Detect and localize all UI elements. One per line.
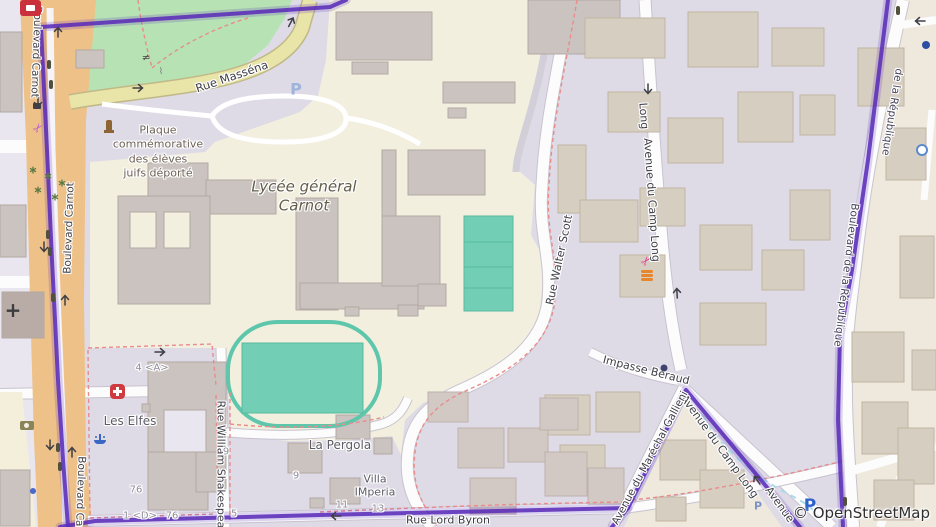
place-label-la-pergola: La Pergola	[309, 439, 371, 453]
house-number: 13	[372, 503, 385, 515]
tree-icon: ∗	[28, 164, 37, 177]
house-number: 9	[223, 446, 229, 458]
traffic-signal-icon	[47, 60, 51, 69]
node-dot	[922, 41, 930, 49]
tree-icon: ∗	[57, 177, 66, 190]
house-number: 1 <D>	[123, 510, 157, 522]
clinic-icon	[110, 384, 125, 399]
traffic-signal-icon	[51, 293, 55, 302]
parking-icon: P	[290, 80, 302, 99]
street-label-rue-william-shakespeare: Rue William Shakespeare	[214, 401, 227, 527]
attribution[interactable]: © OpenStreetMap	[793, 504, 930, 522]
memorial-label: Plaque commémorative des élèves juifs dé…	[113, 123, 203, 180]
map-viewport[interactable]: Boulevard Carnot Boulevard Carnot Boulev…	[0, 0, 936, 527]
church-cross-icon: +	[5, 298, 22, 322]
node-dot	[30, 488, 36, 494]
gate-icon: ≠	[142, 53, 150, 64]
traffic-signal-icon	[46, 230, 50, 239]
node-ring	[916, 144, 928, 156]
house-number: 9	[293, 470, 299, 482]
house-number: 5	[231, 508, 237, 520]
traffic-signal-icon	[58, 462, 62, 471]
memorial-icon	[104, 120, 114, 134]
traffic-signal-icon	[49, 80, 53, 89]
house-number: 76	[166, 510, 179, 522]
street-label-camp-long-partial: Long	[636, 102, 650, 129]
map-canvas	[0, 0, 936, 527]
house-number: 76	[130, 484, 143, 496]
tree-icon: ∗	[43, 170, 52, 183]
traffic-signal-icon	[56, 443, 60, 452]
place-label-les-elfes: Les Elfes	[104, 415, 157, 429]
drinking-fountain-icon: ⌇	[159, 67, 163, 77]
school-label: Lycée général Carnot	[251, 177, 356, 215]
house-number: 11	[336, 499, 349, 511]
fountain-icon	[94, 434, 106, 445]
fast-food-icon	[641, 270, 653, 282]
tree-icon: ∗	[33, 184, 42, 197]
surveillance-icon	[20, 421, 34, 430]
street-label-boulevard-carnot-bottom: Boulevard Carnot	[72, 456, 87, 527]
traffic-signal-icon	[48, 247, 52, 256]
parking-icon: P	[754, 500, 762, 513]
tree-icon: ∗	[50, 191, 59, 204]
house-number: 4 <A>	[135, 362, 168, 374]
node-dot	[661, 365, 668, 372]
bus-stop-icon	[33, 103, 41, 109]
place-label-villa-imperia: Villa IMperia	[355, 473, 396, 498]
poi-icon	[20, 0, 41, 16]
street-label-rue-lord-byron: Rue Lord Byron	[406, 515, 490, 527]
traffic-signal-icon	[896, 6, 900, 15]
